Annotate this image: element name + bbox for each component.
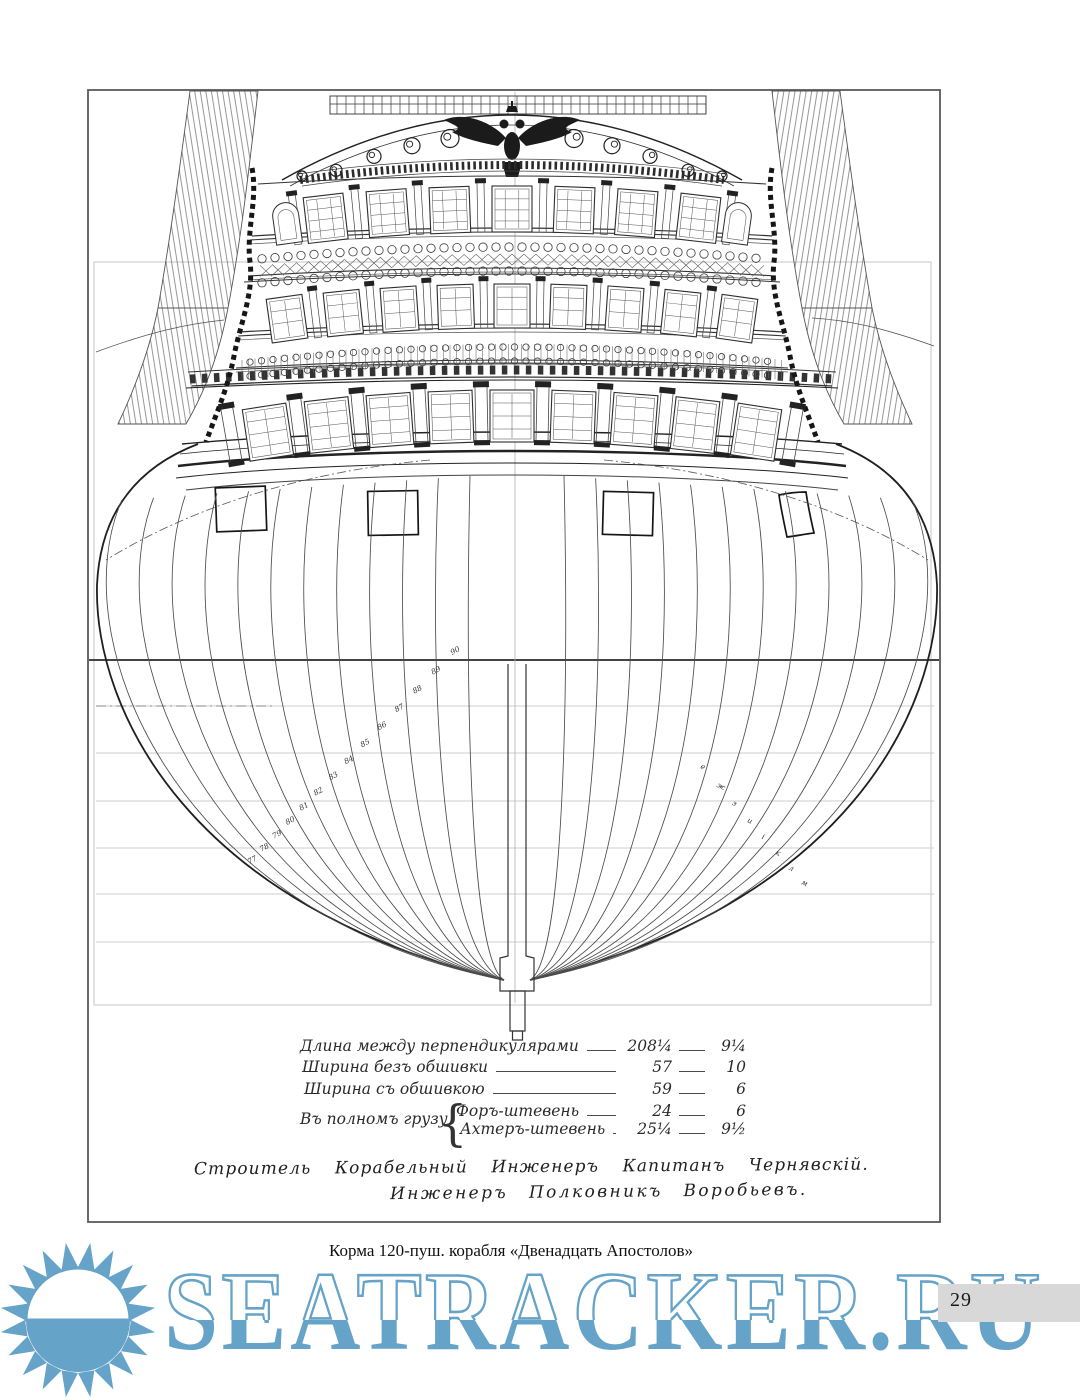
leader-line — [679, 1048, 705, 1051]
sternpost-keel — [500, 664, 534, 1040]
svg-text:77: 77 — [246, 854, 259, 867]
dimension-row: Ширина безъ обшивки 57 10 — [302, 1058, 746, 1076]
leader-line — [493, 1091, 616, 1094]
svg-text:84: 84 — [343, 753, 356, 766]
svg-text:і: і — [760, 832, 767, 841]
svg-text:88: 88 — [411, 683, 424, 696]
inches-value: 9¼ — [712, 1037, 746, 1055]
leader-line — [679, 1069, 705, 1072]
inches-value: 6 — [712, 1102, 746, 1120]
dimension-label: Ахтеръ-штевень — [460, 1120, 605, 1138]
svg-text:86: 86 — [376, 719, 389, 732]
book-page: 9089888786858483828180797877ежзиіклм Дли… — [0, 0, 1080, 1400]
svg-text:85: 85 — [359, 737, 372, 750]
dimension-row: Ширина съ обшивкою 59 6 — [304, 1080, 746, 1098]
dimension-label: Форъ-штевень — [456, 1102, 579, 1120]
seatracker-watermark: SEATRACKER.RU SEATRACKER.RU — [164, 1256, 1051, 1381]
page-number: 29 — [950, 1289, 972, 1312]
leader-line — [613, 1131, 616, 1134]
stern-facade — [176, 96, 848, 490]
svg-text:ж: ж — [715, 780, 727, 792]
svg-text:90: 90 — [449, 644, 462, 657]
svg-text:83: 83 — [327, 770, 340, 783]
dimension-row: Ахтеръ-штевень 25¼ 9½ — [460, 1120, 746, 1138]
svg-text:к: к — [774, 848, 782, 858]
svg-text:82: 82 — [312, 785, 325, 798]
feet-value: 24 — [624, 1102, 672, 1120]
svg-text:м: м — [800, 878, 809, 889]
svg-text:79: 79 — [271, 828, 284, 841]
hull-outline — [97, 444, 937, 980]
frame-line-labels: 9089888786858483828180797877ежзиіклм — [246, 644, 809, 888]
leader-line — [496, 1069, 616, 1072]
dimension-row: Длина между перпендикулярами 208¼ 9¼ — [300, 1037, 746, 1055]
inches-value: 9½ — [712, 1120, 746, 1138]
svg-text:89: 89 — [430, 664, 443, 677]
leader-line — [587, 1113, 616, 1116]
feet-value: 57 — [624, 1058, 672, 1076]
body-plan-frame-lines — [106, 476, 928, 980]
dimension-label: Ширина безъ обшивки — [302, 1058, 488, 1076]
leader-line — [679, 1131, 705, 1134]
svg-text:и: и — [746, 816, 754, 826]
leader-line — [587, 1048, 616, 1051]
inches-value: 6 — [712, 1080, 746, 1098]
dimension-label: Длина между перпендикулярами — [300, 1037, 579, 1055]
feet-value: 208¼ — [624, 1037, 672, 1055]
svg-text:87: 87 — [393, 702, 406, 715]
taffrail — [330, 96, 706, 114]
leader-line — [679, 1113, 705, 1116]
leader-line — [679, 1091, 705, 1094]
dimension-group-label: Въ полномъ грузу — [300, 1110, 448, 1128]
svg-text:81: 81 — [298, 800, 311, 812]
feet-value: 59 — [624, 1080, 672, 1098]
feet-value: 25¼ — [624, 1120, 672, 1138]
sun-logo-icon — [0, 1240, 160, 1400]
svg-text:з: з — [731, 798, 739, 808]
inches-value: 10 — [712, 1058, 746, 1076]
dimension-row: Форъ-штевень 24 6 — [456, 1102, 746, 1120]
